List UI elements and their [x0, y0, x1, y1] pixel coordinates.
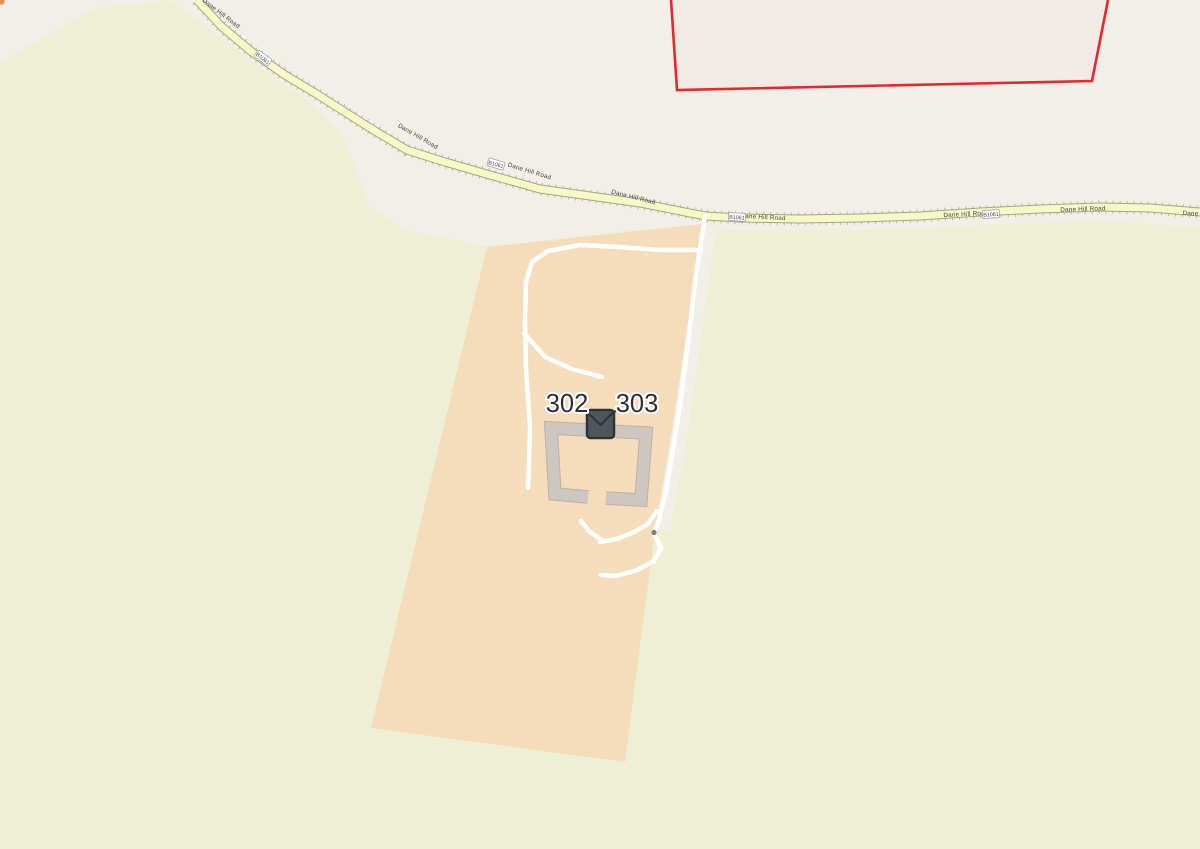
route-badge-text: B1061	[729, 215, 745, 222]
housenumber-302: 302	[546, 390, 589, 418]
route-badge: B1061	[728, 213, 745, 222]
housenumber-303: 303	[616, 390, 659, 418]
gate-node	[651, 530, 656, 535]
red-boundary-polygon	[671, 0, 1108, 90]
route-badge: B1061	[982, 210, 999, 219]
route-badge-text: B1061	[983, 212, 999, 219]
map-canvas[interactable]: 302 303 Dane Hill Road Dane Hill Road Da…	[0, 0, 1200, 849]
